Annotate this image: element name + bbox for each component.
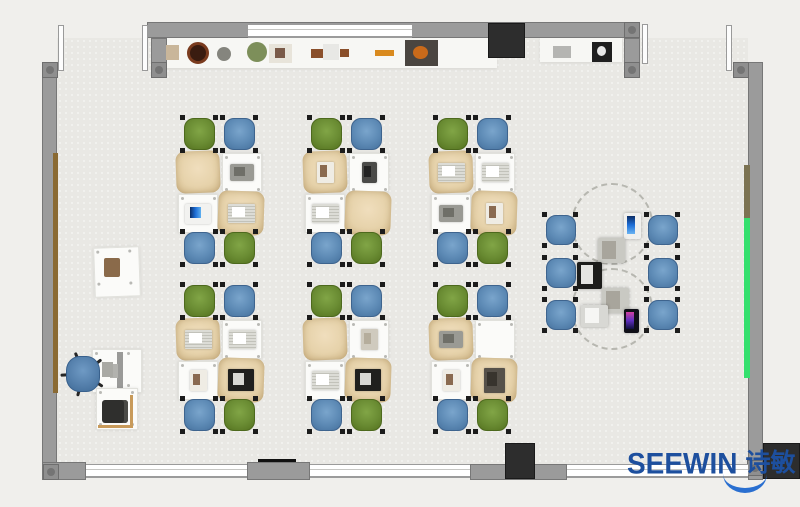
chair-seat bbox=[311, 399, 342, 431]
desk-item-detail bbox=[232, 207, 244, 217]
device-laptop-black bbox=[577, 262, 602, 289]
student-chair-green bbox=[224, 232, 255, 264]
desk-item-detail bbox=[320, 165, 328, 177]
student-chair-green bbox=[437, 118, 468, 150]
sewing-machine-inner bbox=[413, 46, 428, 59]
door-leaf bbox=[142, 25, 148, 71]
desk-item-photo bbox=[190, 370, 207, 391]
desk-bracket-v bbox=[130, 395, 133, 428]
student-chair-blue bbox=[437, 399, 468, 431]
room-floor bbox=[57, 38, 748, 465]
desk-item-detail bbox=[233, 373, 245, 385]
desk-item-laptop-black bbox=[228, 369, 254, 391]
chair-seat bbox=[184, 118, 215, 150]
desk-item-detail bbox=[442, 166, 454, 176]
student-chair-blue bbox=[477, 118, 508, 150]
desk-item-detail bbox=[316, 374, 328, 384]
wood-stick-decor bbox=[311, 49, 323, 58]
student-chair-blue bbox=[477, 285, 508, 317]
floorplan-canvas: SEEWIN 诗敏 bbox=[0, 0, 800, 507]
chair-seat bbox=[648, 300, 678, 330]
chair-seat bbox=[648, 258, 678, 288]
student-desk bbox=[302, 317, 347, 361]
student-chair-green bbox=[477, 399, 508, 431]
wall-post bbox=[43, 464, 59, 480]
brand-logo: SEEWIN 诗敏 bbox=[627, 450, 795, 478]
collab-chair-blue bbox=[546, 258, 576, 288]
chair-seat bbox=[311, 285, 342, 317]
student-chair-green bbox=[311, 285, 342, 317]
chair-seat bbox=[224, 118, 255, 150]
brand-smile-swoosh bbox=[723, 474, 767, 493]
photo-frame-decor bbox=[269, 44, 292, 63]
device-laptop-white bbox=[581, 305, 608, 327]
black-device-decor bbox=[592, 42, 612, 62]
student-chair-green bbox=[184, 118, 215, 150]
top-window bbox=[248, 24, 412, 38]
chair-seat bbox=[437, 399, 468, 431]
chair-seat bbox=[224, 285, 255, 317]
door-leaf bbox=[642, 24, 648, 64]
wood-stick-2-decor bbox=[340, 49, 349, 57]
student-chair-blue bbox=[224, 118, 255, 150]
desk-item-detail bbox=[364, 166, 371, 178]
right-green-board bbox=[744, 218, 750, 378]
device-screen bbox=[627, 216, 636, 234]
collab-chair-blue bbox=[648, 258, 678, 288]
device-laptop-blue-v bbox=[624, 213, 641, 239]
chair-seat bbox=[311, 232, 342, 264]
desk-item-detail bbox=[364, 333, 372, 345]
student-chair-blue bbox=[351, 118, 382, 150]
chair-seat bbox=[546, 300, 576, 330]
student-chair-blue bbox=[311, 399, 342, 431]
chair-seat bbox=[351, 118, 382, 150]
desk-item-book-dark bbox=[484, 368, 505, 393]
right-olive-board bbox=[744, 165, 750, 218]
desk-item-detail bbox=[189, 333, 201, 343]
desk-item-laptop bbox=[439, 205, 463, 222]
bottom-pillar bbox=[247, 462, 310, 480]
gray-box-decor bbox=[553, 46, 571, 58]
device-phone-color bbox=[624, 309, 639, 333]
desk-item-laptop-black bbox=[355, 369, 381, 391]
door-leaf bbox=[726, 25, 732, 71]
desk-item-detail bbox=[193, 374, 201, 386]
left-wood-rail bbox=[53, 153, 58, 393]
wall-post bbox=[733, 62, 749, 78]
device-screen bbox=[626, 312, 634, 329]
chair-seat bbox=[477, 399, 508, 431]
chair-seat bbox=[437, 232, 468, 264]
student-chair-green bbox=[311, 118, 342, 150]
white-cup-decor bbox=[323, 44, 339, 60]
chair-seat bbox=[184, 232, 215, 264]
door-leaf bbox=[58, 25, 64, 71]
chair-seat bbox=[351, 232, 382, 264]
desk-item-detail bbox=[190, 207, 202, 218]
chair-seat bbox=[351, 285, 382, 317]
chair-seat bbox=[184, 285, 215, 317]
desk-item-photo bbox=[317, 162, 334, 183]
chair-seat bbox=[477, 118, 508, 150]
desk-item-detail bbox=[233, 333, 245, 343]
collab-chair-blue bbox=[546, 300, 576, 330]
student-chair-blue bbox=[311, 232, 342, 264]
brand-logo-text: SEEWIN bbox=[627, 449, 737, 478]
desk-item-detail bbox=[446, 374, 454, 386]
desk-item-photo bbox=[443, 370, 460, 391]
desk-item-open-book bbox=[228, 204, 255, 223]
student-chair-blue bbox=[224, 285, 255, 317]
student-chair-green bbox=[224, 399, 255, 431]
desk-item-photo bbox=[486, 203, 503, 224]
desk-item-detail bbox=[443, 208, 454, 217]
photo-frame-inner bbox=[275, 48, 285, 58]
student-chair-blue bbox=[184, 399, 215, 431]
desk-item-detail bbox=[487, 372, 496, 386]
student-chair-green bbox=[477, 232, 508, 264]
gray-stone-decor bbox=[217, 47, 231, 61]
student-chair-green bbox=[351, 232, 382, 264]
cabinet-bottom bbox=[505, 443, 535, 479]
printer bbox=[102, 400, 128, 423]
keyboard bbox=[102, 362, 113, 377]
collab-chair-blue bbox=[648, 300, 678, 330]
chair-seat bbox=[546, 215, 576, 245]
chair-seat bbox=[437, 118, 468, 150]
student-chair-blue bbox=[184, 232, 215, 264]
bottom-window-2 bbox=[310, 464, 470, 478]
device-screen bbox=[581, 265, 594, 284]
desk-item-tablet bbox=[362, 162, 377, 183]
device-tablet-sketch bbox=[598, 238, 625, 263]
teacher-office-chair bbox=[64, 354, 102, 394]
device-screen bbox=[602, 241, 616, 259]
student-desk bbox=[175, 150, 220, 194]
desk-item-detail bbox=[489, 206, 497, 218]
desk-item-laptop-blue bbox=[185, 204, 211, 224]
student-chair-blue bbox=[351, 285, 382, 317]
brown-bowl-decor bbox=[187, 42, 209, 64]
chair-seat bbox=[546, 258, 576, 288]
chair-seat bbox=[437, 285, 468, 317]
desk-item-detail bbox=[443, 334, 454, 343]
desk-item-open-book bbox=[482, 163, 509, 182]
right-wall bbox=[748, 62, 763, 480]
chair-seat bbox=[648, 215, 678, 245]
chair-seat bbox=[477, 285, 508, 317]
desk-item-book bbox=[361, 329, 378, 350]
student-desk bbox=[475, 320, 515, 359]
device-screen bbox=[585, 308, 599, 323]
sewing-machine-decor bbox=[405, 40, 438, 66]
cabinet-top bbox=[488, 23, 525, 58]
desk-item-detail bbox=[316, 207, 328, 217]
desk-item-open-book bbox=[185, 330, 212, 349]
student-chair-green bbox=[184, 285, 215, 317]
bottom-window-1 bbox=[86, 464, 247, 478]
black-device-inner bbox=[597, 46, 606, 56]
wall-black-trim bbox=[258, 459, 296, 462]
chair-seat bbox=[224, 232, 255, 264]
desk-item-laptop bbox=[439, 331, 463, 348]
wall-post bbox=[624, 22, 640, 38]
desk-item-detail bbox=[360, 373, 372, 385]
chair-seat bbox=[184, 399, 215, 431]
desk-item-detail bbox=[486, 166, 498, 176]
chair-seat bbox=[477, 232, 508, 264]
wall-post bbox=[624, 62, 640, 78]
desk-item-detail bbox=[234, 167, 245, 176]
desk-item-open-book bbox=[312, 371, 339, 390]
wall-post bbox=[42, 62, 58, 78]
chair-seat bbox=[311, 118, 342, 150]
tan-box-decor bbox=[166, 45, 179, 60]
office-chair-seat bbox=[66, 356, 100, 392]
device-screen bbox=[606, 291, 620, 309]
desk-item-open-book bbox=[229, 330, 256, 349]
wall-post bbox=[151, 62, 167, 78]
collab-chair-blue bbox=[648, 215, 678, 245]
chair-seat bbox=[224, 399, 255, 431]
desk-item-open-book bbox=[438, 163, 465, 182]
side-desk-book bbox=[104, 258, 120, 277]
collab-chair-blue bbox=[546, 215, 576, 245]
student-chair-blue bbox=[437, 232, 468, 264]
desk-bracket-h bbox=[98, 425, 133, 428]
student-chair-green bbox=[437, 285, 468, 317]
desk-item-laptop bbox=[230, 164, 254, 181]
chair-seat bbox=[351, 399, 382, 431]
green-plant-decor bbox=[247, 42, 267, 62]
orange-tray-decor bbox=[375, 50, 394, 56]
student-chair-green bbox=[351, 399, 382, 431]
desk-item-open-book bbox=[312, 204, 339, 223]
